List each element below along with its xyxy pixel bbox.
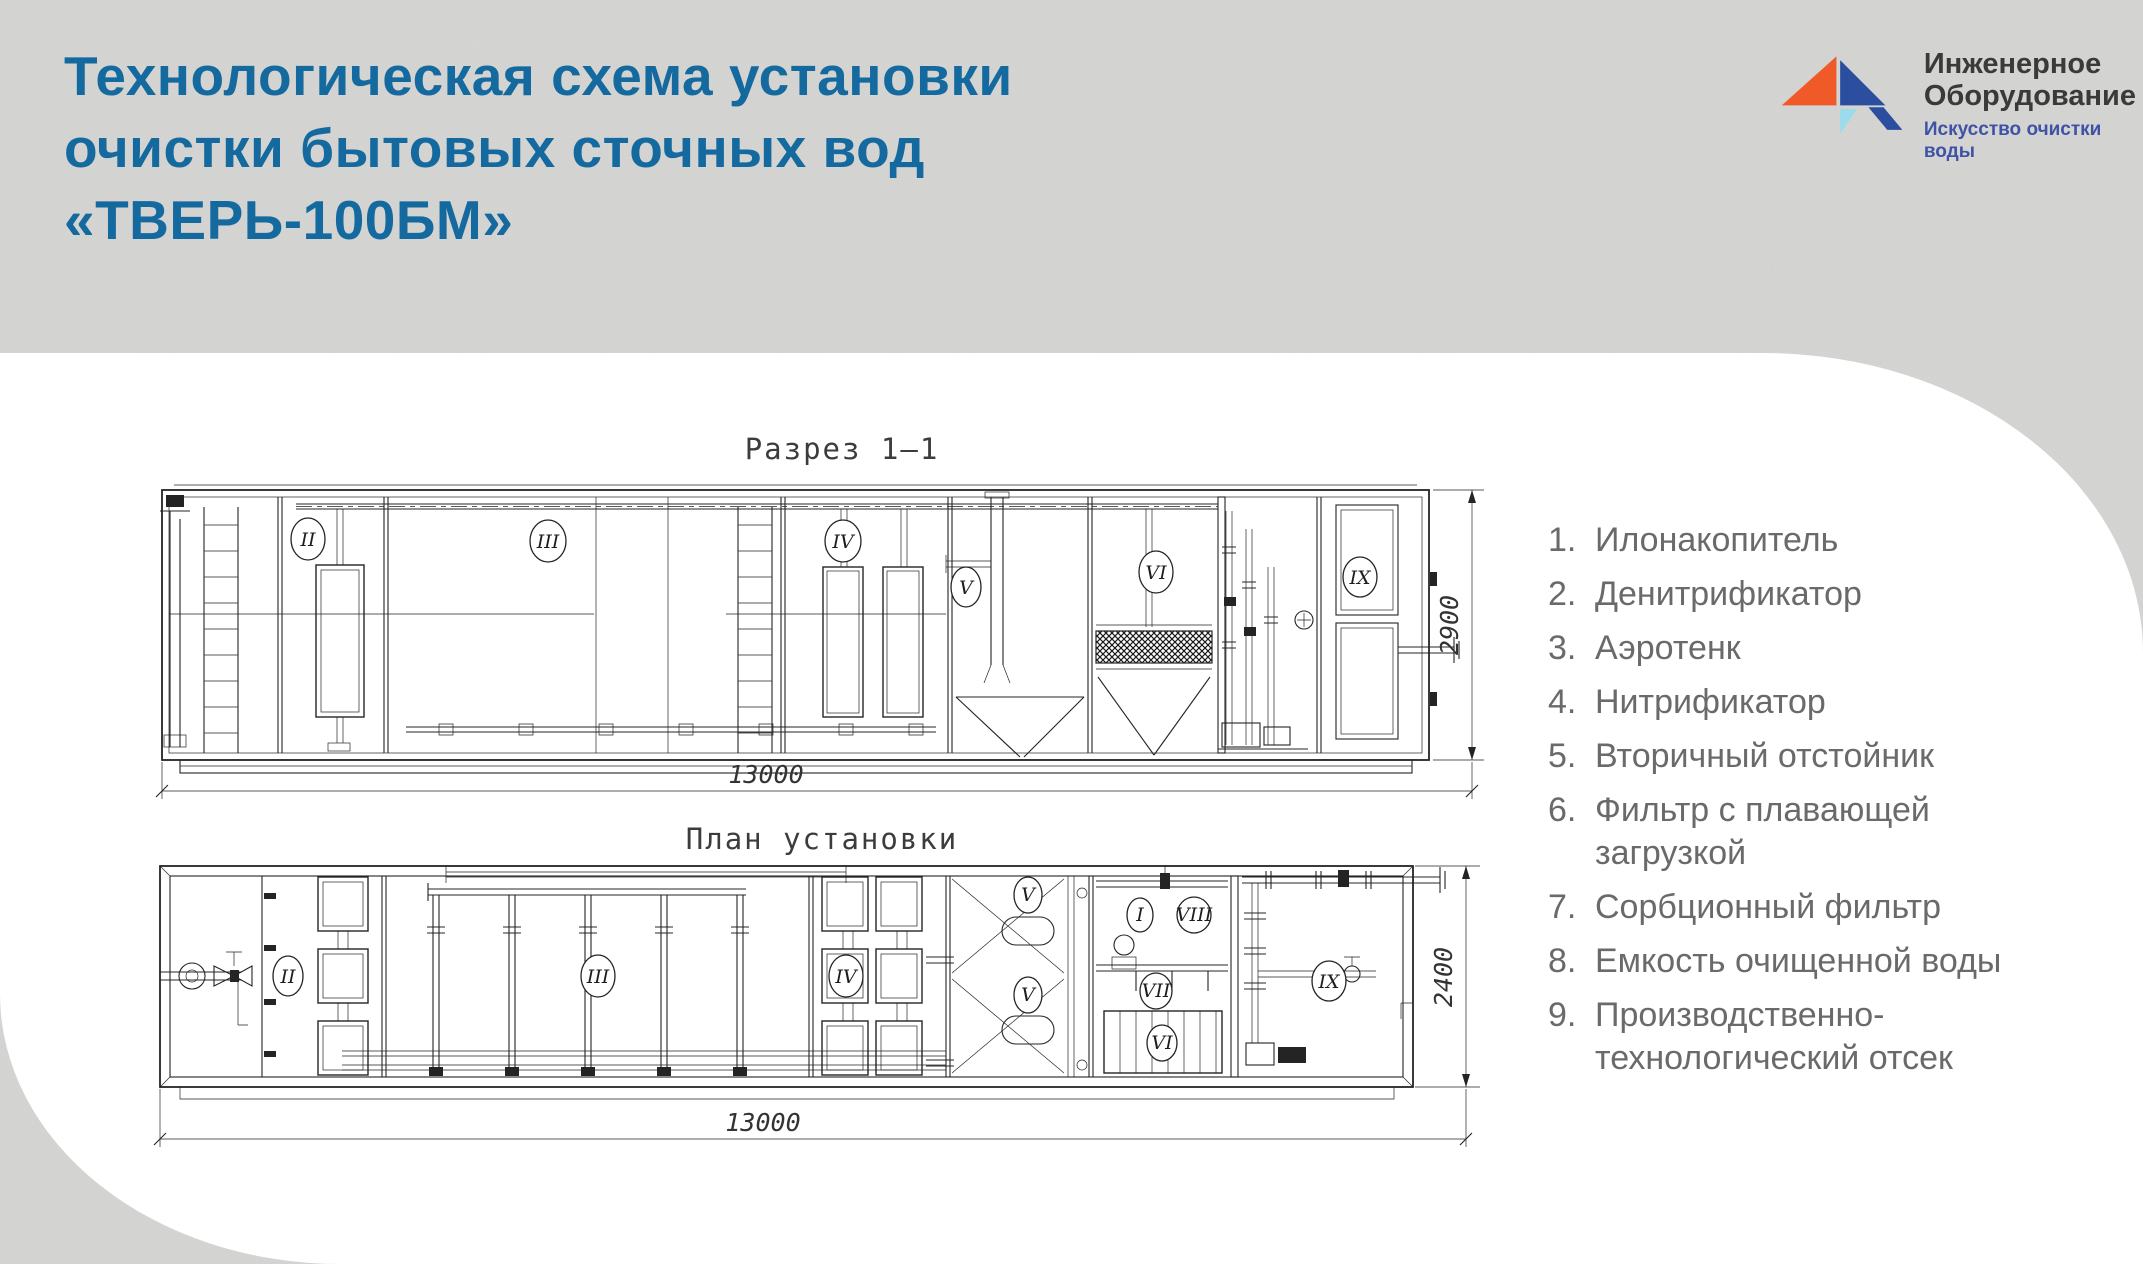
section-height-dim: 2900 <box>1435 595 1464 655</box>
legend-number: 2. <box>1548 573 1595 616</box>
logo-mark-icon <box>1778 48 1910 142</box>
legend-list: 1.Илонакопитель 2.Денитрификатор 3.Аэрот… <box>1548 519 2128 1091</box>
section-label-II: II <box>299 529 316 551</box>
legend-text: Илонакопитель <box>1595 519 1838 562</box>
list-item: 4.Нитрификатор <box>1548 681 2128 724</box>
section-compartment-labels: II III IV V VI IX <box>291 518 1377 607</box>
plan-label-VI: VI <box>1151 1032 1173 1054</box>
legend-text: Денитрификатор <box>1595 573 1862 616</box>
plan-tank <box>160 865 1445 1099</box>
section-drawing-title: Разрез 1–1 <box>612 432 1072 466</box>
legend-text: Производственно- технологический отсек <box>1595 994 1953 1080</box>
plan-dimensions: 2400 13000 <box>154 866 1480 1147</box>
plan-label-VIII: VIII <box>1176 904 1213 926</box>
plan-label-V-top: V <box>1021 884 1037 906</box>
section-label-IX: IX <box>1348 567 1372 589</box>
legend-number: 3. <box>1548 627 1595 670</box>
plan-label-IV: IV <box>834 966 859 988</box>
plan-length-dim: 13000 <box>725 1108 800 1137</box>
legend-text: Аэротенк <box>1595 627 1741 670</box>
legend-number: 7. <box>1548 886 1595 929</box>
plan-label-III: III <box>586 966 610 988</box>
logo-name-line2: Оборудование <box>1924 80 2143 112</box>
list-item: 8.Емкость очищенной воды <box>1548 940 2128 983</box>
page-title: Технологическая схема установки очистки … <box>64 40 1013 256</box>
plan-label-II: II <box>279 966 296 988</box>
section-label-IV: IV <box>831 531 856 553</box>
legend-number: 8. <box>1548 940 1595 983</box>
legend-text: Емкость очищенной воды <box>1595 940 2001 983</box>
list-item: 7.Сорбционный фильтр <box>1548 886 2128 929</box>
plan-drawing-title: План установки <box>592 822 1052 856</box>
plan-height-dim: 2400 <box>1429 947 1458 1007</box>
legend-number: 6. <box>1548 789 1595 875</box>
legend-number: 4. <box>1548 681 1595 724</box>
list-item: 3.Аэротенк <box>1548 627 2128 670</box>
logo-navy-tail <box>1868 107 1902 130</box>
plan-drawing: 2400 13000 II III IV V V I VIII VII VI I… <box>146 853 1486 1171</box>
logo-name-line1: Инженерное <box>1924 48 2143 80</box>
legend-text: Фильтр с плавающей загрузкой <box>1595 789 1930 875</box>
legend-number: 1. <box>1548 519 1595 562</box>
plan-label-IX: IX <box>1317 971 1341 993</box>
legend-number: 5. <box>1548 735 1595 778</box>
logo: Инженерное Оборудование Искусство очистк… <box>1778 48 2143 163</box>
legend-text: Нитрификатор <box>1595 681 1826 724</box>
section-label-VI: VI <box>1145 562 1167 584</box>
logo-orange-triangle <box>1782 56 1837 105</box>
list-item: 6.Фильтр с плавающей загрузкой <box>1548 789 2128 875</box>
section-label-V: V <box>959 577 975 599</box>
legend-text: Вторичный отстойник <box>1595 735 1934 778</box>
list-item: 5.Вторичный отстойник <box>1548 735 2128 778</box>
plan-label-VII: VII <box>1142 980 1171 1002</box>
slide: Технологическая схема установки очистки … <box>0 0 2143 1264</box>
legend-text: Сорбционный фильтр <box>1595 886 1941 929</box>
logo-navy-triangle <box>1840 60 1885 105</box>
section-label-III: III <box>536 531 560 553</box>
section-length-dim: 13000 <box>728 760 803 789</box>
section-tank <box>160 485 1459 773</box>
plan-label-V-bottom: V <box>1021 984 1037 1006</box>
vent-symbol <box>1295 611 1313 629</box>
list-item: 1.Илонакопитель <box>1548 519 2128 562</box>
section-drawing: 2900 13000 II III IV V VI IX <box>146 477 1486 809</box>
logo-tagline: Искусство очистки воды <box>1924 119 2143 163</box>
list-item: 9.Производственно- технологический отсек <box>1548 994 2128 1080</box>
logo-text: Инженерное Оборудование Искусство очистк… <box>1924 48 2143 163</box>
logo-cyan-triangle <box>1840 109 1857 133</box>
legend-number: 9. <box>1548 994 1595 1080</box>
list-item: 2.Денитрификатор <box>1548 573 2128 616</box>
plan-label-I: I <box>1135 904 1144 926</box>
